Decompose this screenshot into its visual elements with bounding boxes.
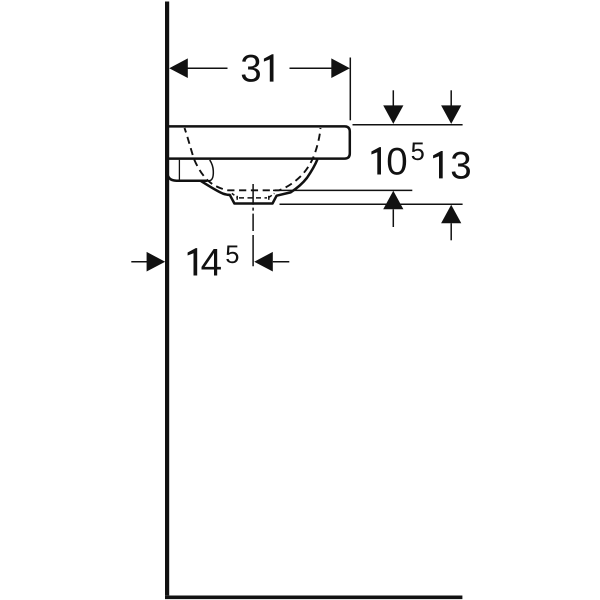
svg-text:3: 3 (450, 144, 471, 187)
svg-text:4: 4 (201, 242, 222, 285)
svg-text:5: 5 (225, 241, 239, 269)
svg-text:3: 3 (240, 48, 261, 91)
svg-text:0: 0 (386, 141, 407, 184)
svg-text:5: 5 (411, 138, 425, 166)
